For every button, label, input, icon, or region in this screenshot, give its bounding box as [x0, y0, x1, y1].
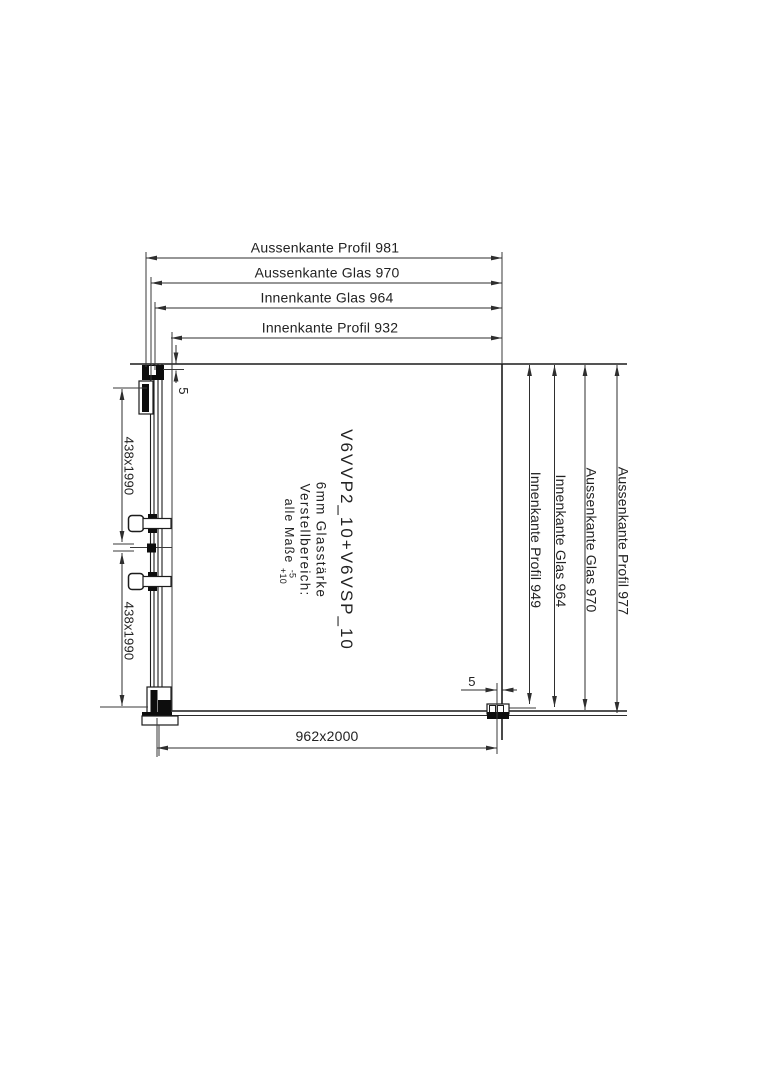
gap-label-bottom-right: 5 [468, 674, 475, 689]
annotation-adjustment-scope: alle Maße [282, 499, 296, 564]
annotation-adjustment-label: Verstellbereich: [298, 483, 313, 596]
annotation-adjustment-minus: -5 [288, 570, 298, 579]
dim-innenkante-glas-964-top: Innenkante Glas 964 [155, 290, 502, 309]
profile-centre-mark [113, 544, 172, 553]
dim-label-962x2000: 962x2000 [295, 728, 358, 744]
dim-label-aussenkante-profil-977: Aussenkante Profil 977 [616, 467, 632, 615]
bottom-dimension: 962x2000 [157, 683, 497, 757]
shower-panel-technical-drawing: Aussenkante Profil 981 Aussenkante Glas … [0, 0, 763, 1080]
dim-label-aussenkante-glas-970-top: Aussenkante Glas 970 [255, 265, 400, 281]
dim-aussenkante-glas-970-top: Aussenkante Glas 970 [151, 265, 502, 284]
dim-label-aussenkante-glas-970-right: Aussenkante Glas 970 [584, 468, 600, 613]
right-dimensions: Innenkante Profil 949 Innenkante Glas 96… [528, 365, 632, 713]
dim-label-innenkante-profil-949: Innenkante Profil 949 [528, 472, 544, 609]
gap-dimension-top-left: 5 [163, 345, 191, 395]
technical-drawing-page: Aussenkante Profil 981 Aussenkante Glas … [0, 0, 763, 1080]
dim-label-438x1990-lower: 438x1990 [122, 602, 137, 661]
bottom-wall-bracket [142, 687, 178, 756]
dim-innenkante-profil-932: Innenkante Profil 932 [171, 320, 502, 339]
centre-annotation: V6VVP2_10+V6VSP_10 6mm Glasstärke Verste… [278, 429, 356, 651]
dim-innenkante-glas-964-right: Innenkante Glas 964 [553, 365, 569, 707]
dim-aussenkante-glas-970-right: Aussenkante Glas 970 [584, 365, 600, 710]
annotation-model-code: V6VVP2_10+V6VSP_10 [337, 429, 356, 651]
dim-label-innenkante-glas-964-top: Innenkante Glas 964 [260, 290, 393, 306]
dim-aussenkante-profil-981: Aussenkante Profil 981 [146, 240, 502, 259]
top-dimensions: Aussenkante Profil 981 Aussenkante Glas … [146, 240, 502, 382]
dim-innenkante-profil-949: Innenkante Profil 949 [528, 365, 544, 704]
dim-aussenkante-profil-977: Aussenkante Profil 977 [616, 365, 632, 713]
dim-label-innenkante-profil-932: Innenkante Profil 932 [262, 320, 399, 336]
dim-label-aussenkante-profil-981: Aussenkante Profil 981 [251, 240, 399, 256]
annotation-adjustment-plus: +10 [278, 568, 288, 584]
gap-label-top-left: 5 [176, 387, 191, 394]
upper-clamp-bracket [129, 514, 172, 533]
wall-profile-left [113, 332, 178, 756]
gap-dimension-bottom-right: 5 [461, 674, 517, 690]
annotation-glass-thickness: 6mm Glasstärke [314, 482, 329, 598]
panel-outline [130, 364, 627, 740]
dim-label-innenkante-glas-964-right: Innenkante Glas 964 [553, 474, 569, 607]
dim-label-438x1990-upper: 438x1990 [122, 437, 137, 496]
bottom-right-profile [487, 704, 509, 719]
lower-clamp-bracket [129, 572, 172, 591]
